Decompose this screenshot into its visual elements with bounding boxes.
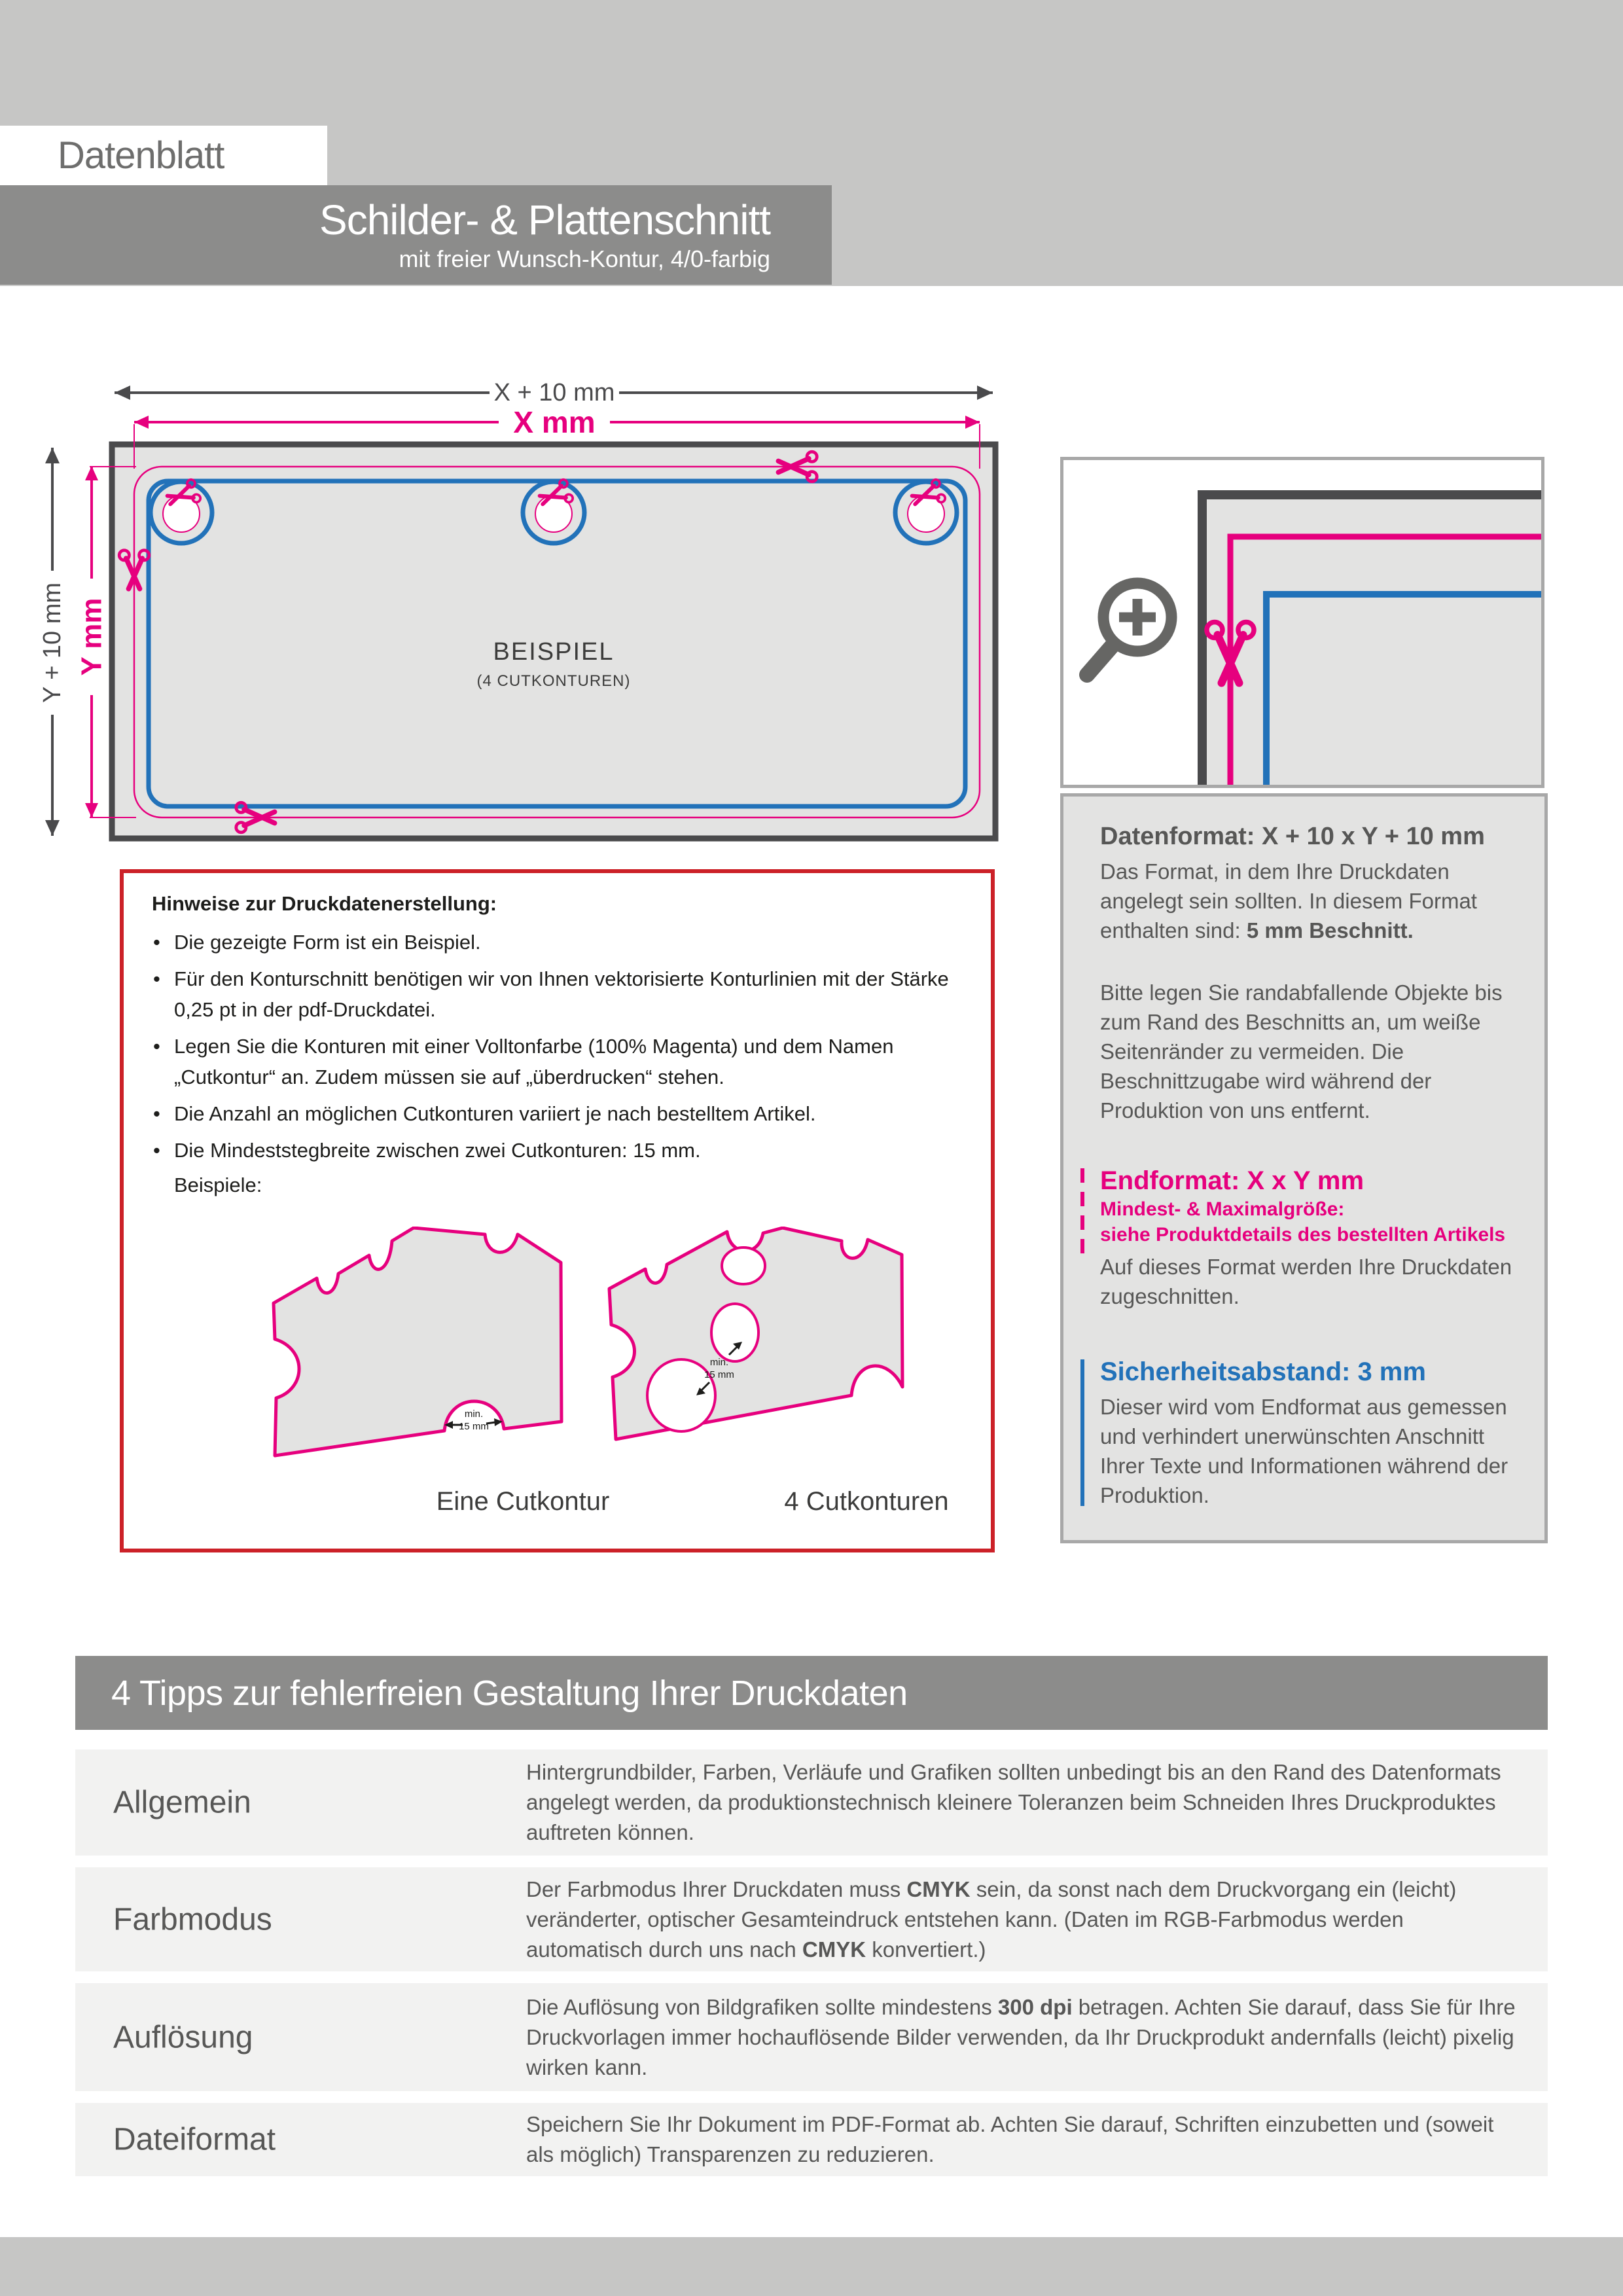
tips-heading: 4 Tipps zur fehlerfreien Gestaltung Ihre…: [75, 1673, 908, 1713]
bullet-dot: •: [153, 963, 160, 994]
page-title: Schilder- & Plattenschnitt: [319, 198, 770, 242]
document-type-label: Datenblatt: [0, 134, 224, 177]
tip-text: Speichern Sie Ihr Dokument im PDF-Format…: [526, 2109, 1521, 2170]
endformat-accent-line: [1080, 1168, 1084, 1260]
dim-inner-height: Y mm: [75, 466, 109, 817]
endformat-text: Auf dieses Format werden Ihre Druckdaten…: [1100, 1252, 1518, 1311]
info-panel: Datenformat: X + 10 x Y + 10 mm Das Form…: [1060, 793, 1548, 1543]
document-type-box: Datenblatt: [0, 126, 327, 185]
tip-text: Hintergrundbilder, Farben, Verläufe und …: [526, 1757, 1521, 1848]
datenformat-heading: Datenformat: X + 10 x Y + 10 mm: [1100, 821, 1518, 852]
hinweise-title: Hinweise zur Druckdatenerstellung:: [152, 891, 991, 916]
svg-text:min.: min.: [465, 1408, 483, 1420]
hinweise-list: •Die gezeigte Form ist ein Beispiel. •Fü…: [152, 927, 991, 1166]
list-item: •Die Mindeststegbreite zwischen zwei Cut…: [152, 1135, 979, 1166]
tip-row-dateiformat: Dateiformat Speichern Sie Ihr Dokument i…: [75, 2103, 1548, 2176]
svg-text:15 mm: 15 mm: [704, 1369, 734, 1380]
bullet-dot: •: [153, 1031, 160, 1062]
tip-row-aufloesung: Auflösung Die Auflösung von Bildgrafiken…: [75, 1983, 1548, 2091]
corner-detail-graphic: [1063, 460, 1544, 788]
title-band: Schilder- & Plattenschnitt mit freier Wu…: [0, 185, 832, 285]
tip-row-farbmodus: Farbmodus Der Farbmodus Ihrer Druckdaten…: [75, 1867, 1548, 1971]
tips-heading-band: 4 Tipps zur fehlerfreien Gestaltung Ihre…: [75, 1656, 1548, 1730]
examples-label: Beispiele:: [174, 1174, 991, 1197]
list-item: •Die Anzahl an möglichen Cutkonturen var…: [152, 1098, 979, 1129]
dim-outer-height: Y + 10 mm: [35, 448, 69, 836]
sicherheitsabstand-accent-line: [1080, 1359, 1084, 1506]
tip-text: Der Farbmodus Ihrer Druckdaten muss CMYK…: [526, 1874, 1521, 1965]
bullet-dot: •: [153, 927, 160, 958]
list-item: •Legen Sie die Konturen mit einer Vollto…: [152, 1031, 979, 1092]
sicherheitsabstand-block: Sicherheitsabstand: 3 mm Dieser wird vom…: [1100, 1357, 1518, 1510]
dim-outer-height-label: Y + 10 mm: [39, 583, 66, 703]
sicherheitsabstand-heading: Sicherheitsabstand: 3 mm: [1100, 1357, 1518, 1387]
dim-inner-height-label: Y mm: [76, 598, 108, 675]
plate-diagram: X + 10 mm X mm Y + 10 mm Y mm: [0, 353, 1021, 851]
svg-text:15 mm: 15 mm: [459, 1421, 489, 1432]
example2-caption: 4 Cutkonturen: [729, 1487, 1004, 1516]
bullet-dot: •: [153, 1098, 160, 1129]
tip-label: Farbmodus: [113, 1901, 272, 1937]
endformat-subline1: Mindest- & Maximalgröße:: [1100, 1197, 1518, 1221]
list-item: •Für den Konturschnitt benötigen wir von…: [152, 963, 979, 1025]
corner-detail-box: [1060, 457, 1544, 788]
zoom-in-icon: [1087, 583, 1171, 675]
tip-text: Die Auflösung von Bildgrafiken sollte mi…: [526, 1992, 1521, 2083]
bullet-dot: •: [153, 1135, 160, 1166]
plate-sublabel: (4 CUTKONTUREN): [477, 672, 631, 690]
tip-row-allgemein: Allgemein Hintergrundbilder, Farben, Ver…: [75, 1749, 1548, 1856]
endformat-block: Endformat: X x Y mm Mindest- & Maximalgr…: [1100, 1166, 1518, 1311]
page-subtitle: mit freier Wunsch-Kontur, 4/0-farbig: [399, 246, 770, 272]
endformat-heading: Endformat: X x Y mm: [1100, 1166, 1518, 1196]
list-item: •Die gezeigte Form ist ein Beispiel.: [152, 927, 979, 958]
beschnitt-text: Bitte legen Sie randabfallende Objekte b…: [1100, 978, 1518, 1125]
hinweise-box: Hinweise zur Druckdatenerstellung: •Die …: [120, 869, 995, 1552]
datasheet-page: Datenblatt Schilder- & Plattenschnitt mi…: [0, 0, 1623, 2296]
sicherheitsabstand-text: Dieser wird vom Endformat aus gemessen u…: [1100, 1392, 1518, 1510]
datenformat-text: Das Format, in dem Ihre Druckdaten angel…: [1100, 857, 1518, 945]
svg-text:min.: min.: [710, 1357, 728, 1368]
tip-label: Allgemein: [113, 1785, 251, 1821]
footer-band: [0, 2237, 1623, 2296]
example1-caption: Eine Cutkontur: [385, 1487, 660, 1516]
example-shape-one-contour: min. 15 mm: [236, 1227, 563, 1462]
dim-outer-width-label: X + 10 mm: [494, 379, 615, 406]
plate-label: BEISPIEL: [493, 638, 615, 666]
dim-inner-width-label: X mm: [513, 405, 595, 439]
tip-label: Auflösung: [113, 2019, 253, 2055]
tip-label: Dateiformat: [113, 2122, 276, 2158]
dim-inner-width: X mm: [134, 405, 980, 439]
example-shape-four-contours: min. 15 mm: [580, 1227, 907, 1462]
endformat-subline2: siehe Produktdetails des bestellten Arti…: [1100, 1223, 1518, 1247]
